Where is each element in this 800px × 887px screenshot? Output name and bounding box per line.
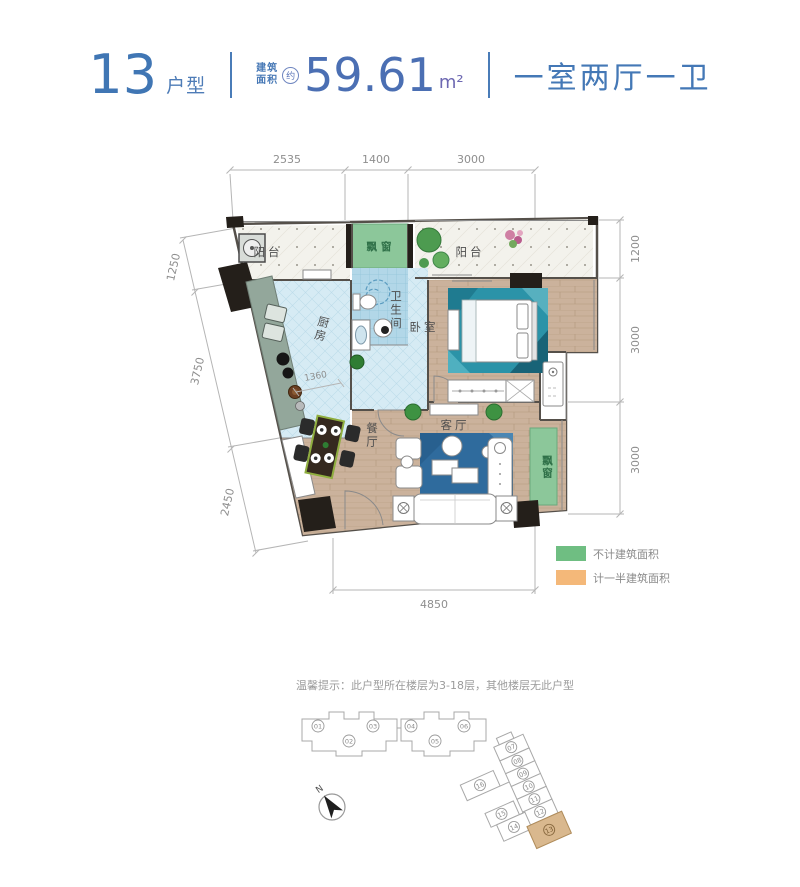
- area-prefix-top: 建筑: [256, 63, 278, 76]
- column: [408, 224, 413, 268]
- column: [588, 216, 598, 225]
- unit-03: 03: [369, 723, 377, 731]
- room-label-bay-top: 飘窗: [367, 240, 396, 253]
- sofa-side-table: [393, 496, 414, 521]
- balcony-cabinet: [303, 270, 331, 279]
- area-value: 59.61: [304, 52, 436, 98]
- unit-02: 02: [345, 738, 353, 746]
- side-table: [401, 456, 413, 468]
- unit-05: 05: [431, 738, 439, 746]
- title-divider: [488, 52, 490, 98]
- room-label-balcony-right: 阳台: [456, 245, 485, 259]
- layout-summary: 一室两厅一卫: [514, 53, 712, 97]
- room-label-bathroom: 卫生间: [389, 290, 403, 331]
- room-label-bay-right: 飘窗: [541, 455, 553, 480]
- balcony-right-floor: [415, 219, 593, 280]
- legend-swatch-green: [556, 546, 586, 561]
- column: [298, 496, 336, 532]
- dim-left-1: 1250: [164, 252, 183, 282]
- unit-title: 13 户型: [88, 48, 206, 102]
- toilet-icon: [353, 294, 376, 310]
- dim-left-3: 2450: [218, 487, 237, 517]
- dim-top-1: 2535: [273, 153, 301, 166]
- column: [226, 216, 244, 228]
- dim-bottom: 4850: [420, 598, 448, 611]
- legend-swatch-orange: [556, 570, 586, 585]
- area-legend: 不计建筑面积 计一半建筑面积: [556, 546, 670, 585]
- dim-top-2: 1400: [362, 153, 390, 166]
- room-label-balcony-left: 阳台: [254, 245, 283, 259]
- floor-plan: 2535 1400 3000 1200 3000 3000 1250 3750 …: [0, 130, 800, 887]
- site-plan-building-a: 01 02 03 04 05 06: [302, 712, 486, 756]
- coffee-table: [452, 468, 478, 483]
- plan-title-bar: 13 户型 建筑 面积 约 59.61 m² 一室两厅一卫: [0, 48, 800, 102]
- nightstand: [448, 310, 459, 350]
- plant-icon: [486, 404, 502, 420]
- layout-summary-block: 一室两厅一卫: [514, 53, 712, 97]
- area-prefix-bottom: 面积: [256, 75, 278, 88]
- console-table: [430, 404, 478, 415]
- wardrobe: [448, 380, 534, 402]
- pouf: [442, 436, 462, 456]
- area-prefix: 建筑 面积: [256, 63, 278, 88]
- dim-right-3: 3000: [629, 446, 642, 474]
- dim-left-2: 3750: [188, 356, 207, 386]
- area-block: 建筑 面积 约 59.61 m²: [256, 52, 463, 98]
- approx-badge: 约: [282, 67, 299, 84]
- room-label-dining: 餐厅: [365, 421, 379, 449]
- floor-note: 温馨提示：此户型所在楼层为3-18层，其他楼层无此户型: [296, 678, 574, 692]
- chaise-lounge: [488, 438, 512, 500]
- fridge-icon: [543, 362, 563, 406]
- sofa: [413, 494, 497, 524]
- dim-right-2: 3000: [629, 326, 642, 354]
- unit-type-label: 户型: [166, 71, 206, 98]
- room-label-bedroom: 卧室: [410, 320, 439, 334]
- sofa-side-table: [496, 496, 517, 521]
- north-compass: N: [311, 782, 345, 820]
- plant-icon: [350, 355, 364, 369]
- unit-number: 13: [88, 48, 157, 102]
- unit-04: 04: [407, 723, 415, 731]
- room-label-living: 客厅: [441, 418, 470, 432]
- legend-label-2: 计一半建筑面积: [593, 571, 670, 585]
- column: [346, 224, 351, 268]
- armchair: [396, 466, 422, 488]
- vanity-sink-icon: [352, 320, 370, 350]
- title-divider: [230, 52, 232, 98]
- dim-right-1: 1200: [629, 235, 642, 263]
- area-unit: m²: [439, 72, 464, 93]
- legend-label-1: 不计建筑面积: [593, 547, 659, 561]
- north-label: N: [314, 784, 325, 796]
- plant-icon: [405, 404, 421, 420]
- dim-top-3: 3000: [457, 153, 485, 166]
- bed: [462, 300, 537, 362]
- unit-01: 01: [314, 723, 322, 731]
- unit-06: 06: [460, 723, 468, 731]
